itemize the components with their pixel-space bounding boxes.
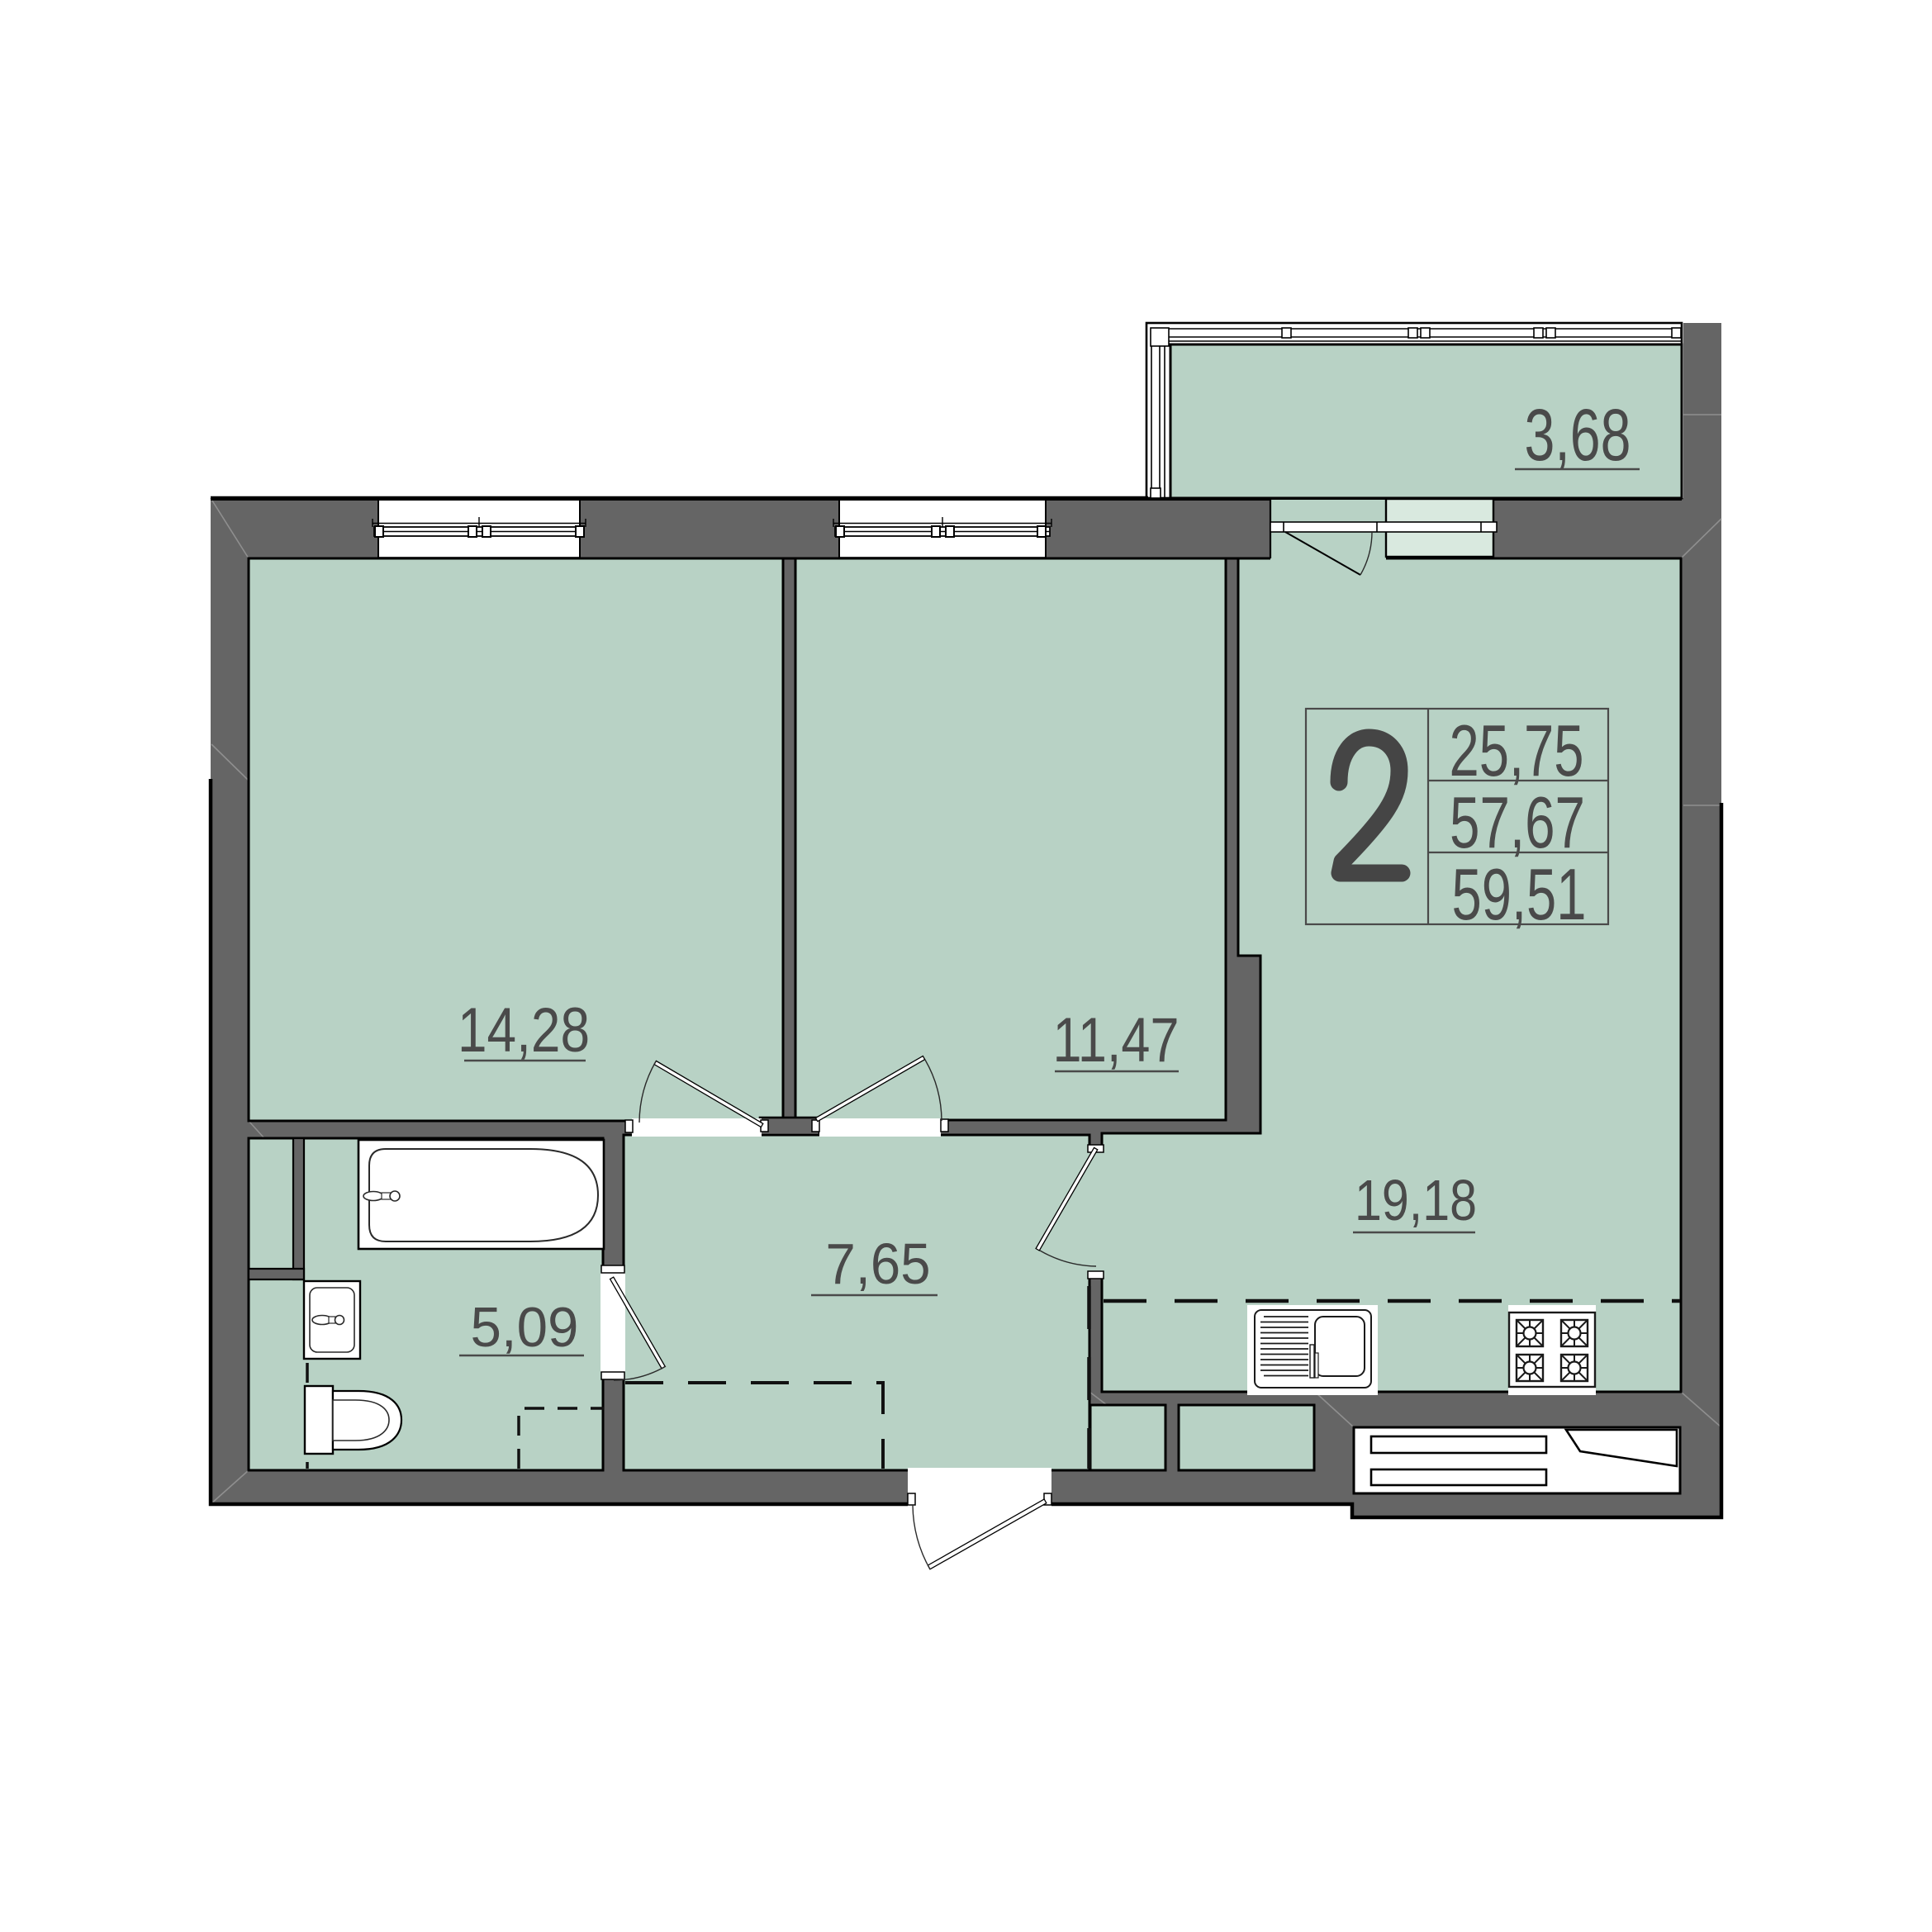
svg-text:5,09: 5,09 <box>471 1296 579 1359</box>
svg-text:19,18: 19,18 <box>1355 1168 1477 1232</box>
svg-text:11,47: 11,47 <box>1053 1005 1180 1075</box>
svg-text:59,51: 59,51 <box>1452 853 1587 935</box>
svg-text:57,67: 57,67 <box>1450 781 1585 863</box>
svg-text:14,28: 14,28 <box>458 995 590 1066</box>
svg-text:3,68: 3,68 <box>1525 393 1631 476</box>
svg-text:7,65: 7,65 <box>826 1232 931 1296</box>
svg-text:25,75: 25,75 <box>1450 710 1584 791</box>
